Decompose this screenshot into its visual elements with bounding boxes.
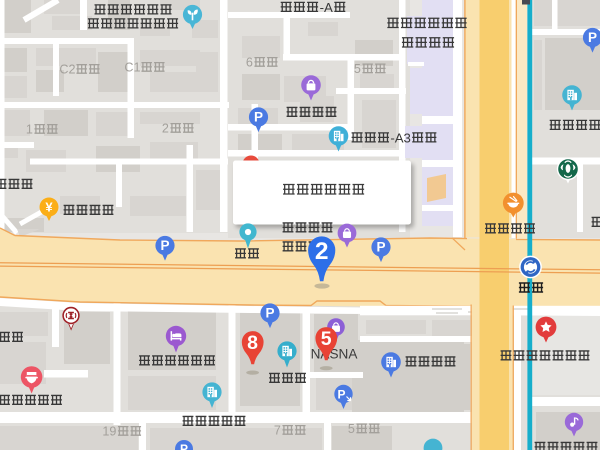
svg-text:2: 2: [162, 122, 169, 136]
svg-text:P: P: [254, 110, 263, 125]
svg-text:6: 6: [246, 56, 253, 70]
svg-text:P: P: [337, 387, 345, 401]
svg-text:C1: C1: [124, 61, 140, 75]
svg-text:5: 5: [321, 328, 332, 350]
svg-text:5: 5: [348, 422, 355, 436]
svg-text:P: P: [265, 306, 274, 321]
svg-text:C2: C2: [59, 63, 75, 77]
svg-text:-A: -A: [320, 0, 333, 15]
svg-text:P: P: [588, 30, 597, 45]
svg-text:8: 8: [247, 332, 258, 354]
svg-text:5: 5: [354, 62, 361, 76]
svg-text:P: P: [180, 442, 188, 450]
svg-text:P: P: [160, 238, 169, 253]
svg-text:1: 1: [26, 123, 33, 137]
svg-text:P: P: [376, 240, 385, 255]
svg-text:¥: ¥: [45, 200, 53, 215]
svg-text:-A3: -A3: [390, 130, 411, 145]
svg-text:NASNA: NASNA: [311, 346, 359, 361]
svg-text:19: 19: [102, 425, 116, 439]
svg-text:7: 7: [274, 424, 281, 438]
svg-text:2: 2: [315, 238, 329, 265]
